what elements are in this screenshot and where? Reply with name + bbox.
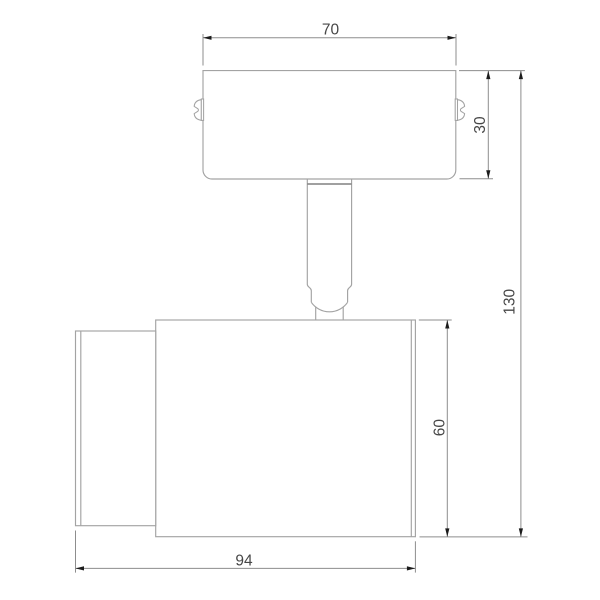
- svg-text:60: 60: [432, 419, 449, 437]
- svg-text:70: 70: [322, 21, 340, 38]
- svg-text:30: 30: [472, 116, 489, 134]
- svg-text:94: 94: [235, 553, 253, 570]
- svg-text:130: 130: [502, 288, 519, 314]
